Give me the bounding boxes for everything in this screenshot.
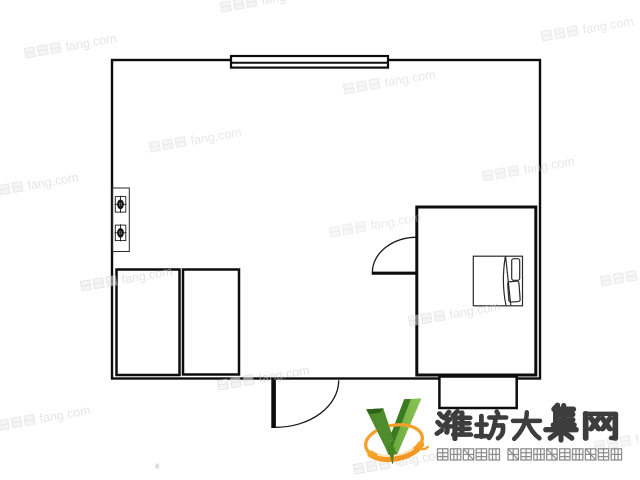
svg-text:fang.com: fang.com [581,14,634,37]
svg-text:fang.com: fang.com [369,210,422,233]
svg-text:fang.com: fang.com [64,31,117,54]
svg-text:fang.com: fang.com [189,125,242,148]
svg-text:fang.com: fang.com [260,0,313,8]
svg-text:fang.com: fang.com [26,170,79,193]
svg-text:fang.com: fang.com [257,363,310,386]
svg-text:fang.com: fang.com [522,154,575,177]
svg-text:fang.com: fang.com [383,67,436,90]
svg-text:fang.com: fang.com [38,403,91,426]
svg-text:fang.com: fang.com [634,424,640,447]
